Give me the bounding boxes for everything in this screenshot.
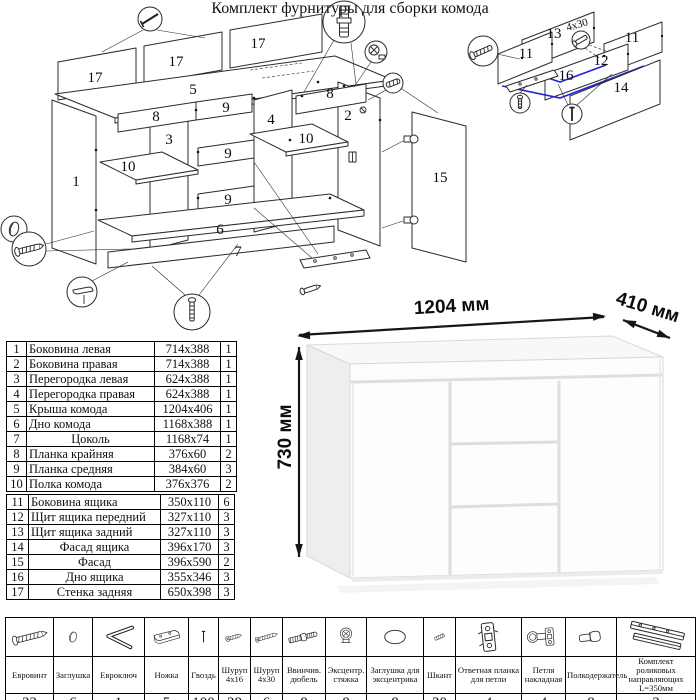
- width-label: 1204 мм: [413, 294, 490, 319]
- label-top: 5: [189, 82, 197, 98]
- part-qty: 2: [219, 555, 235, 570]
- part-number: 1: [7, 342, 27, 357]
- part-number: 3: [7, 372, 27, 387]
- part-qty: 3: [221, 462, 237, 477]
- hex-key-icon: [93, 619, 144, 655]
- foot-callout: [67, 262, 128, 307]
- part-qty: 3: [219, 570, 235, 585]
- part-number: 14: [7, 540, 29, 555]
- screw-icon: [517, 95, 522, 108]
- hardware-name: Петля накладная: [522, 657, 566, 694]
- table-row: 14Фасад ящика396x1703: [7, 540, 235, 555]
- part-qty: 2: [221, 477, 237, 492]
- assembly-instruction-sheet: 17 17 17 5 1 2: [0, 0, 700, 700]
- part-size: 396x170: [161, 540, 219, 555]
- part-number: 4: [7, 387, 27, 402]
- table-row: 7Цоколь1168x741: [7, 432, 237, 447]
- hardware-qty: 1: [93, 694, 145, 700]
- part-number: 16: [7, 570, 29, 585]
- part-number: 8: [7, 447, 27, 462]
- hardware-qty: 8: [283, 694, 326, 700]
- screw-4x16-icon: [219, 619, 250, 655]
- table-row: 4Перегородка правая624x3881: [7, 387, 237, 402]
- part-name: Щит ящика задний: [29, 525, 161, 540]
- parts-table-carcass: 1Боковина левая714x3881 2Боковина правая…: [6, 341, 237, 492]
- hardware-icon-cell: [6, 618, 54, 657]
- part-number: 2: [7, 357, 27, 372]
- hardware-icon-cell: [522, 618, 566, 657]
- label-shelf-right: 10: [299, 131, 314, 147]
- hinge-plate-icon: [349, 152, 356, 162]
- part-number: 5: [7, 402, 27, 417]
- hardware-name: Ответная планка для петли: [456, 657, 522, 694]
- nail-icon: [189, 619, 218, 655]
- part-size: 384x60: [155, 462, 221, 477]
- table-row: 11Боковина ящика350x1106: [7, 495, 235, 510]
- hardware-icon-cell: [189, 618, 219, 657]
- part-size: 1168x74: [155, 432, 221, 447]
- part-qty: 3: [219, 525, 235, 540]
- height-dimension: 730 мм: [275, 347, 303, 557]
- part-size: 327x110: [161, 525, 219, 540]
- part-number: 15: [7, 555, 29, 570]
- label-drawer-front-inner: 12: [594, 53, 609, 69]
- part-name: Перегородка левая: [27, 372, 155, 387]
- hardware-icon-cell: [566, 618, 617, 657]
- label-back-3: 17: [251, 36, 267, 52]
- part-size: 624x388: [155, 387, 221, 402]
- part-name: Крыша комода: [27, 402, 155, 417]
- part-name: Планка средняя: [27, 462, 155, 477]
- part-qty: 1: [221, 417, 237, 432]
- screw-icon: [188, 298, 195, 321]
- hardware-qty: 8: [367, 694, 424, 700]
- cam-lock-icon: [326, 619, 366, 655]
- part-number: 10: [7, 477, 27, 492]
- cap-icon: [54, 619, 92, 655]
- table-row: 1Боковина левая714x3881: [7, 342, 237, 357]
- door-hinge-icon: [404, 135, 418, 143]
- table-row: 3Перегородка левая624x3881: [7, 372, 237, 387]
- part-qty: 2: [221, 447, 237, 462]
- table-row: 6Дно комода1168x3881: [7, 417, 237, 432]
- roller-rails-icon: [617, 619, 695, 655]
- part-name: Перегородка правая: [27, 387, 155, 402]
- door-hinge-icon: [404, 216, 418, 224]
- hardware-name: Евровинт: [6, 657, 54, 694]
- hardware-name: Заглушка: [54, 657, 93, 694]
- label-back-1: 17: [88, 70, 104, 86]
- part-qty: 1: [221, 387, 237, 402]
- hardware-qty: 20: [424, 694, 456, 700]
- hardware-title: Комплект фурнитуры для сборки комода: [0, 0, 700, 18]
- part-size: 396x590: [161, 555, 219, 570]
- table-row: 16Дно ящика355x3463: [7, 570, 235, 585]
- hardware-icon-cell: [326, 618, 367, 657]
- wooden-dowel-icon: [424, 619, 455, 655]
- label-rail8-left: 8: [152, 109, 160, 125]
- label-rail8-right: 8: [326, 86, 334, 102]
- part-name: Планка крайняя: [27, 447, 155, 462]
- hardware-qty: 6: [251, 694, 283, 700]
- label-drawer-bottom: 16: [559, 68, 575, 84]
- part-number: 7: [7, 432, 27, 447]
- part-size: 1168x388: [155, 417, 221, 432]
- table-row: 15Фасад396x5902: [7, 555, 235, 570]
- hardware-qty: 6: [54, 694, 93, 700]
- part-size: 350x110: [161, 495, 219, 510]
- hardware-name: Шуруп 4x30: [251, 657, 283, 694]
- hardware-icon-cell: [145, 618, 189, 657]
- hardware-name: Заглушка для эксцентрика: [367, 657, 424, 694]
- label-drawer-side-left: 11: [519, 46, 533, 62]
- part-number: 11: [7, 495, 29, 510]
- threaded-dowel-icon: [283, 619, 325, 655]
- hardware-icon-cell: [456, 618, 522, 657]
- hardware-name: Полкодержатель: [566, 657, 617, 694]
- hardware-qty: 3: [617, 694, 696, 700]
- hardware-name: Эксцентр. стяжка: [326, 657, 367, 694]
- hardware-name: Шуруп 4x16: [219, 657, 251, 694]
- hardware-qty: 4: [522, 694, 566, 700]
- right-side-panel: 2: [338, 82, 380, 246]
- cam-cap-icon: [367, 619, 423, 655]
- hardware-qty: 8: [566, 694, 617, 700]
- label-partition-left: 3: [165, 132, 173, 148]
- hardware-name: Гвоздь: [189, 657, 219, 694]
- dresser-render: 1204 мм 410 мм 730 мм: [260, 283, 700, 600]
- part-name: Боковина правая: [27, 357, 155, 372]
- euro-screw-icon: [6, 619, 53, 655]
- part-name: Цоколь: [27, 432, 155, 447]
- part-qty: 1: [221, 357, 237, 372]
- part-size: 376x60: [155, 447, 221, 462]
- part-number: 9: [7, 462, 27, 477]
- table-row: 10Полка комода376x3762: [7, 477, 237, 492]
- hardware-icon-cell: [251, 618, 283, 657]
- left-side-panel: 1: [52, 100, 96, 264]
- label-bottom: 6: [216, 222, 224, 238]
- hardware-qty: 5: [145, 694, 189, 700]
- hinge-plate-icon: [456, 619, 521, 655]
- part-qty: 3: [219, 540, 235, 555]
- label-side-left: 1: [72, 174, 80, 190]
- label-door: 15: [433, 170, 448, 186]
- part-name: Фасад ящика: [29, 540, 161, 555]
- part-number: 6: [7, 417, 27, 432]
- hardware-qty: 100: [189, 694, 219, 700]
- drawer-rails: 9 9 9: [196, 94, 254, 212]
- part-size: 650x398: [161, 585, 219, 600]
- part-qty: 3: [219, 585, 235, 600]
- label-drawer-back: 13: [547, 26, 562, 42]
- table-row: 2Боковина правая714x3881: [7, 357, 237, 372]
- door-panel: 15: [382, 83, 466, 262]
- hardware-name: Ввинчив. дюбель: [283, 657, 326, 694]
- part-qty: 1: [221, 432, 237, 447]
- part-qty: 1: [221, 342, 237, 357]
- drawer-detail-diagram: 13 11 11 12 16 14: [468, 12, 663, 140]
- label-drawer-facade: 14: [614, 80, 630, 96]
- label-plinth: 7: [234, 244, 242, 260]
- part-name: Фасад: [29, 555, 161, 570]
- part-size: 714x388: [155, 357, 221, 372]
- hardware-qty: 22: [6, 694, 54, 700]
- part-number: 17: [7, 585, 29, 600]
- label-rail9-top: 9: [222, 100, 230, 116]
- screw-4x30-icon: [251, 619, 282, 655]
- part-number: 12: [7, 510, 29, 525]
- label-side-right: 2: [344, 108, 352, 124]
- part-name: Щит ящика передний: [29, 510, 161, 525]
- table-row: 8Планка крайняя376x602: [7, 447, 237, 462]
- part-size: 327x110: [161, 510, 219, 525]
- hardware-icon-cell: [54, 618, 93, 657]
- label-back-2: 17: [169, 54, 185, 70]
- hardware-icon-cell: [283, 618, 326, 657]
- hardware-table: Евровинт Заглушка Евроключ Ножка Гвоздь …: [5, 617, 696, 700]
- hardware-name: Евроключ: [93, 657, 145, 694]
- hardware-name: Шкант: [424, 657, 456, 694]
- hardware-name: Комплект роликовых направляющих L=350мм: [617, 657, 696, 694]
- part-size: 355x346: [161, 570, 219, 585]
- part-size: 376x376: [155, 477, 221, 492]
- hardware-name: Ножка: [145, 657, 189, 694]
- part-name: Боковина левая: [27, 342, 155, 357]
- hardware-icons-row: [6, 618, 696, 657]
- label-drawer-side-right: 11: [625, 30, 639, 46]
- hardware-qty: 4: [456, 694, 522, 700]
- hinge-icon: [522, 619, 565, 655]
- label-shelf-left: 10: [121, 159, 136, 175]
- hardware-qty: 28: [219, 694, 251, 700]
- part-qty: 1: [221, 372, 237, 387]
- shelf-pin-icon: [566, 619, 616, 655]
- width-dimension: 1204 мм: [297, 294, 606, 339]
- depth-dimension: 410 мм: [613, 288, 681, 338]
- hardware-icon-cell: [93, 618, 145, 657]
- height-label: 730 мм: [275, 404, 296, 469]
- hardware-qty: 8: [326, 694, 367, 700]
- hardware-qty-row: 22 6 1 5 100 28 6 8 8 8 20 4 4 8 3: [6, 694, 696, 700]
- hardware-names-row: Евровинт Заглушка Евроключ Ножка Гвоздь …: [6, 657, 696, 694]
- part-qty: 1: [221, 402, 237, 417]
- part-number: 13: [7, 525, 29, 540]
- hardware-icon-cell: [617, 618, 696, 657]
- hardware-icon-cell: [219, 618, 251, 657]
- table-row: 5Крыша комода1204x4061: [7, 402, 237, 417]
- hardware-icon-cell: [367, 618, 424, 657]
- foot-icon: [145, 619, 188, 655]
- part-size: 1204x406: [155, 402, 221, 417]
- part-name: Стенка задняя: [29, 585, 161, 600]
- table-row: 12Щит ящика передний327x1103: [7, 510, 235, 525]
- hardware-icon-cell: [424, 618, 456, 657]
- part-size: 624x388: [155, 372, 221, 387]
- parts-table-drawers: 11Боковина ящика350x1106 12Щит ящика пер…: [6, 494, 235, 600]
- part-name: Полка комода: [27, 477, 155, 492]
- table-row: 9Планка средняя384x603: [7, 462, 237, 477]
- part-qty: 6: [219, 495, 235, 510]
- label-partition-right: 4: [267, 112, 275, 128]
- table-row: 13Щит ящика задний327x1103: [7, 525, 235, 540]
- part-size: 714x388: [155, 342, 221, 357]
- part-name: Дно ящика: [29, 570, 161, 585]
- part-name: Боковина ящика: [29, 495, 161, 510]
- part-name: Дно комода: [27, 417, 155, 432]
- label-rail9-mid: 9: [224, 146, 232, 162]
- part-qty: 3: [219, 510, 235, 525]
- dresser-body: [307, 336, 663, 593]
- table-row: 17Стенка задняя650x3983: [7, 585, 235, 600]
